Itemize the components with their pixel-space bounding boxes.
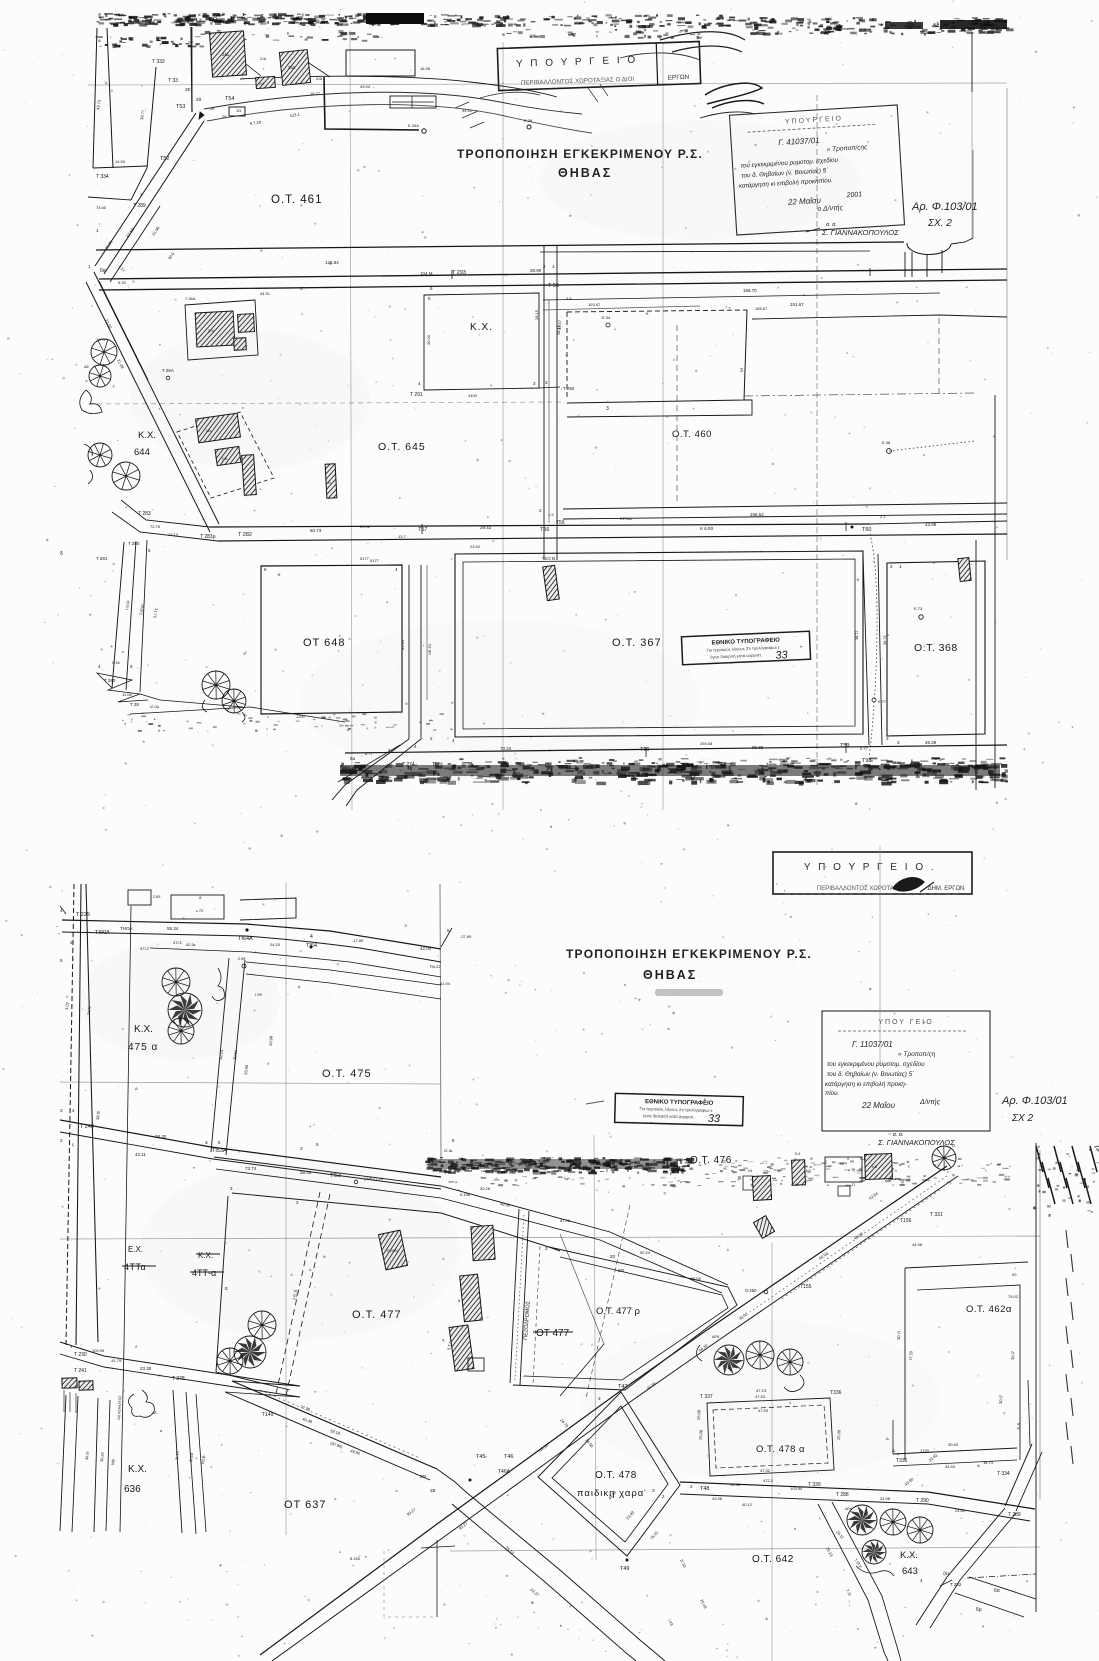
- svg-text:Τ 334: Τ 334: [96, 174, 109, 180]
- svg-text:92.24: 92.24: [640, 1250, 651, 1255]
- svg-text:Τ46Α: Τ46Α: [498, 1469, 511, 1475]
- svg-text:Ο.Τ. 368: Ο.Τ. 368: [914, 642, 958, 654]
- svg-text:Υ Π Ο Υ Ρ Γ Ε Ι Ο .: Υ Π Ο Υ Ρ Γ Ε Ι Ο .: [804, 862, 936, 873]
- svg-text:1720: 1720: [920, 1448, 930, 1453]
- svg-text:38.Ι0: 38.Ι0: [95, 1110, 101, 1120]
- svg-text:43.98: 43.98: [712, 1496, 723, 1501]
- svg-text:3 5: 3 5: [566, 296, 572, 301]
- svg-text:ΔΗΜ. ΕΡΓΩΝ: ΔΗΜ. ΕΡΓΩΝ: [928, 886, 965, 892]
- svg-text:Τ52: Τ52: [160, 156, 169, 162]
- svg-text:ΟΤ 637: ΟΤ 637: [284, 1499, 327, 1511]
- svg-text:Τ 339: Τ 339: [808, 1482, 821, 1488]
- svg-text:Ο.Τ. 642: Ο.Τ. 642: [752, 1554, 794, 1565]
- svg-text:22 Μαΐου: 22 Μαΐου: [861, 1101, 896, 1110]
- svg-text:Τ 288: Τ 288: [836, 1492, 849, 1498]
- svg-text:74.60: 74.60: [96, 205, 107, 210]
- svg-text:Τ60: Τ60: [862, 527, 871, 533]
- svg-text:Τ 240: Τ 240: [80, 1124, 94, 1130]
- svg-text:Ο: Ο: [952, 1143, 955, 1148]
- svg-text:33: 33: [775, 649, 789, 662]
- svg-text:Ο.Τ. 475: Ο.Τ. 475: [322, 1068, 372, 1080]
- svg-text:Τ 281: Τ 281: [96, 556, 108, 561]
- svg-text:Τ 292: Τ 292: [563, 386, 575, 391]
- svg-text:6α: 6α: [100, 268, 106, 274]
- svg-text:43.38: 43.38: [730, 1482, 741, 1487]
- svg-text:Σ/Δ: Σ/Δ: [259, 82, 265, 86]
- svg-text:Τ53: Τ53: [176, 104, 185, 110]
- svg-text:1400: 1400: [468, 393, 478, 398]
- svg-text:1,5: 1,5: [548, 512, 554, 517]
- svg-text:Ε.34: Ε.34: [602, 315, 611, 320]
- svg-text:Ε.39: Ε.39: [524, 118, 533, 123]
- svg-text:16.77: 16.77: [310, 91, 321, 96]
- svg-text:60.73: 60.73: [310, 528, 322, 533]
- svg-text:103.94: 103.94: [790, 1486, 803, 1491]
- svg-text:Κ.Χ.: Κ.Χ.: [900, 1550, 918, 1561]
- svg-text:6ρ: 6ρ: [976, 1607, 982, 1613]
- svg-text:Τ335: Τ335: [896, 1458, 908, 1464]
- svg-text:2.69: 2.69: [153, 895, 160, 899]
- svg-text:Ν8Ι: Ν8Ι: [111, 1459, 116, 1465]
- svg-text:42.11: 42.11: [135, 1152, 146, 1157]
- svg-text:14.73: 14.73: [983, 1460, 994, 1465]
- svg-text:Ε.34Α: Ε.34Α: [408, 123, 419, 128]
- svg-text:30.43: 30.43: [948, 1442, 959, 1447]
- svg-text:Τ56: Τ56: [556, 520, 565, 526]
- svg-text:9.77: 9.77: [860, 746, 869, 751]
- svg-text:Σ. ΓΙΑΝΝΑΚΟΠΟΥΛΟΣ: Σ. ΓΙΑΝΝΑΚΟΠΟΥΛΟΣ: [821, 228, 899, 237]
- svg-text:28.15: 28.15: [534, 309, 539, 320]
- svg-text:Δ: Δ: [135, 1086, 138, 1091]
- svg-text:Ο.Τ. 461: Ο.Τ. 461: [271, 194, 322, 206]
- svg-text:104 Μ.: 104 Μ.: [420, 271, 434, 276]
- svg-text:Τ54: Τ54: [225, 96, 234, 102]
- svg-text:30.28: 30.28: [480, 1186, 491, 1191]
- svg-text:166.52: 166.52: [750, 512, 764, 517]
- svg-text:Ο.Τ. 462α: Ο.Τ. 462α: [966, 1304, 1012, 1315]
- svg-text:Δ/ντής: Δ/ντής: [919, 1099, 941, 1106]
- svg-text:ι/ι: ι/ι: [328, 481, 331, 485]
- svg-text:128.84: 128.84: [325, 260, 339, 265]
- svg-text:5.Δ: 5.Δ: [860, 1156, 866, 1161]
- svg-text:ε.72: ε.72: [196, 908, 204, 913]
- svg-text:2Β: 2Β: [430, 1488, 436, 1493]
- svg-text:23.42: 23.42: [470, 544, 481, 549]
- svg-text:ΤΙ90Α: ΤΙ90Α: [95, 930, 110, 936]
- svg-text:Τ 289: Τ 289: [133, 203, 146, 209]
- svg-text:Τ 280: Τ 280: [104, 678, 116, 683]
- svg-text:Τ48: Τ48: [700, 1486, 709, 1492]
- svg-text:Αρ. Φ.103/01: Αρ. Φ.103/01: [1001, 1095, 1068, 1107]
- svg-text:Τ56: Τ56: [540, 527, 549, 533]
- svg-text:23.30: 23.30: [140, 1366, 152, 1371]
- svg-text:ΕΡΓΩΝ: ΕΡΓΩΝ: [668, 74, 690, 82]
- svg-text:55.34: 55.34: [167, 926, 179, 931]
- svg-text:Τ49: Τ49: [620, 1566, 629, 1572]
- svg-text:Κ 6.93: Κ 6.93: [700, 526, 714, 531]
- svg-text:« Τροποπ/ςη: « Τροποπ/ςη: [898, 1051, 936, 1058]
- svg-text:Τ45: Τ45: [476, 1454, 485, 1460]
- svg-text:30.7Ι: 30.7Ι: [896, 1331, 901, 1340]
- svg-text:Τ 290: Τ 290: [916, 1498, 929, 1504]
- svg-text:24.80: 24.80: [955, 1508, 966, 1513]
- svg-text:13.13: 13.13: [168, 532, 179, 537]
- svg-text:Τ59: Τ59: [840, 743, 849, 749]
- svg-text:Ζ/Δ: Ζ/Δ: [316, 76, 323, 81]
- svg-text:29.42: 29.42: [480, 525, 492, 530]
- svg-text:8.150: 8.150: [350, 1556, 361, 1561]
- svg-text:-17.89: -17.89: [352, 938, 364, 943]
- svg-text:Ο.Τ. 460: Ο.Τ. 460: [672, 429, 712, 440]
- svg-text:ζ5Ι: ζ5Ι: [943, 1571, 949, 1576]
- svg-text:30.25: 30.25: [100, 1452, 105, 1462]
- svg-text:Τ 28: Τ 28: [130, 702, 139, 707]
- svg-text:ΚΡ.ΟΔ: ΚΡ.ΟΔ: [620, 516, 632, 521]
- svg-text:Τ 333: Τ 333: [152, 59, 165, 65]
- svg-text:28.15: 28.15: [556, 324, 561, 335]
- svg-text:3.02: 3.02: [64, 1001, 70, 1010]
- svg-text:6α: 6α: [350, 756, 356, 761]
- svg-text:ΙΖ.ΟΔ: ΙΖ.ΟΔ: [150, 705, 160, 709]
- svg-text:41.94: 41.94: [440, 981, 451, 986]
- svg-text:2 1: 2 1: [880, 514, 886, 519]
- svg-text:Τ 291: Τ 291: [410, 392, 423, 398]
- svg-text:Τ155: Τ155: [800, 1284, 812, 1290]
- svg-text:20.98: 20.98: [268, 1035, 274, 1046]
- svg-text:11.08: 11.08: [122, 692, 132, 697]
- svg-text:Σ/Δ: Σ/Δ: [208, 328, 215, 333]
- svg-text:ΥΠΟΥ ΓΕΙΟ: ΥΠΟΥ ΓΕΙΟ: [878, 1019, 933, 1026]
- svg-text:Ε.38: Ε.38: [882, 440, 891, 445]
- svg-text:ΕΞ Β: ΕΞ Β: [545, 556, 555, 561]
- svg-text:38.71: 38.71: [855, 630, 859, 640]
- svg-text:87.26: 87.26: [560, 1218, 571, 1223]
- svg-text:Γ. 11037/01: Γ. 11037/01: [852, 1040, 893, 1049]
- svg-text:9.16: 9.16: [112, 660, 121, 665]
- svg-text:7Ι.Β: 7Ι.Β: [1016, 1422, 1021, 1430]
- svg-text:72.75: 72.75: [150, 524, 161, 529]
- svg-text:Ο.Τ. 478: Ο.Τ. 478: [595, 1470, 637, 1481]
- svg-text:Ε.73: Ε.73: [914, 606, 923, 611]
- svg-text:24.98: 24.98: [880, 1496, 891, 1501]
- svg-text:26.39: 26.39: [925, 740, 937, 745]
- svg-text:43.98: 43.98: [925, 522, 937, 527]
- svg-text:Αρ. Φ.103/01: Αρ. Φ.103/01: [911, 201, 978, 213]
- svg-text:Τ 280: Τ 280: [128, 541, 140, 546]
- svg-text:30.Ι7: 30.Ι7: [998, 1394, 1003, 1404]
- svg-text:Τ 293: Τ 293: [452, 270, 466, 276]
- svg-text:94.51: 94.51: [462, 108, 473, 113]
- svg-text:ΤΙ64Α: ΤΙ64Α: [238, 936, 253, 942]
- svg-text:28.90: 28.90: [530, 268, 542, 273]
- svg-text:ΣΧ 2: ΣΧ 2: [1011, 1113, 1033, 1124]
- svg-text:Τ 282: Τ 282: [238, 532, 252, 538]
- svg-text:1Ω: 1Ω: [236, 108, 241, 113]
- svg-text:ΙΖ.ΙΔ: ΙΖ.ΙΔ: [444, 1148, 453, 1153]
- svg-text:2Ε: 2Ε: [185, 87, 191, 92]
- svg-text:ΟΤ 477: ΟΤ 477: [536, 1328, 570, 1339]
- svg-text:4: 4: [310, 934, 313, 940]
- svg-text:40.12: 40.12: [742, 1502, 753, 1507]
- svg-text:7.36Δ: 7.36Δ: [185, 296, 196, 301]
- svg-text:Ι/Δ: Ι/Δ: [806, 1168, 811, 1173]
- svg-text:2θ: 2θ: [222, 114, 227, 119]
- svg-text:20: 20: [610, 1254, 616, 1259]
- svg-text:Σ/Δ: Σ/Δ: [222, 52, 229, 57]
- svg-text:Ι/Δ: Ι/Δ: [872, 1164, 877, 1169]
- svg-text:ΡΔ.22: ΡΔ.22: [430, 964, 441, 969]
- svg-text:294.08: 294.08: [700, 756, 713, 761]
- svg-text:ΘΗΒΑΣ: ΘΗΒΑΣ: [643, 968, 697, 982]
- svg-text:3: 3: [606, 406, 609, 412]
- svg-text:ΤΗΟΑ: ΤΗΟΑ: [120, 926, 132, 931]
- svg-text:Τ 278: Τ 278: [172, 1376, 185, 1382]
- svg-text:-27.89: -27.89: [460, 934, 472, 939]
- svg-text:Τ 230: Τ 230: [74, 1352, 87, 1358]
- svg-text:Τ149: Τ149: [262, 1412, 274, 1418]
- svg-text:5.4: 5.4: [795, 1152, 800, 1156]
- svg-text:Τ 241: Τ 241: [74, 1368, 87, 1374]
- svg-text:94.51: 94.51: [260, 291, 271, 296]
- svg-text:643: 643: [902, 1566, 918, 1577]
- svg-text:193.47: 193.47: [588, 302, 601, 307]
- svg-text:6α: 6α: [994, 1588, 1000, 1594]
- svg-text:Ι/4: Ι/4: [748, 1169, 752, 1173]
- svg-text:5177: 5177: [360, 556, 370, 561]
- svg-text:42.00: 42.00: [420, 946, 432, 951]
- svg-text:2Θ: 2Θ: [618, 1268, 625, 1273]
- svg-text:Ο.Τ. 477 ρ: Ο.Τ. 477 ρ: [596, 1306, 641, 1317]
- svg-text:43.94: 43.94: [360, 84, 371, 89]
- svg-text:2θ: 2θ: [196, 97, 202, 102]
- svg-text:Τ57: Τ57: [418, 527, 427, 533]
- svg-text:Τ 283: Τ 283: [138, 511, 151, 517]
- svg-text:294.08: 294.08: [700, 741, 713, 746]
- svg-text:644: 644: [134, 447, 150, 458]
- svg-text:16.98: 16.98: [420, 66, 431, 71]
- svg-text:Τ 33: Τ 33: [168, 78, 178, 84]
- svg-text:ΤΡΟΠΟΠΟΙΗΣΗ ΕΓΚΕΚΡΙΜΕΝΟΥ Ρ.Σ: ΤΡΟΠΟΠΟΙΗΣΗ ΕΓΚΕΚΡΙΜΕΝΟΥ Ρ.Σ.: [566, 947, 812, 961]
- svg-text:Τ156: Τ156: [900, 1218, 912, 1224]
- svg-text:151.67: 151.67: [790, 302, 804, 307]
- svg-text:Τ 334: Τ 334: [997, 1471, 1010, 1477]
- svg-text:636: 636: [124, 1484, 141, 1495]
- svg-text:28.32: 28.32: [155, 1134, 167, 1139]
- svg-text:155.67: 155.67: [755, 306, 768, 311]
- svg-text:ΔΕΝ: ΔΕΝ: [845, 1507, 853, 1511]
- svg-text:Τ 282: Τ 282: [950, 1582, 962, 1587]
- svg-text:5177: 5177: [370, 558, 380, 563]
- svg-text:Σ/Δ: Σ/Δ: [288, 65, 295, 70]
- svg-text:Σ/Δ: Σ/Δ: [260, 56, 267, 61]
- svg-text:26: 26: [210, 106, 215, 111]
- svg-text:Π: Π: [852, 1182, 855, 1187]
- svg-text:30.Ι7: 30.Ι7: [1010, 1350, 1015, 1360]
- svg-text:14.93: 14.93: [115, 159, 126, 164]
- svg-text:33: 33: [708, 1113, 721, 1125]
- svg-text:Ο.Τ. 645: Ο.Τ. 645: [378, 441, 426, 453]
- svg-text:ΔΓ,: ΔΓ,: [152, 1410, 158, 1415]
- svg-text:75.0C: 75.0C: [1008, 1294, 1019, 1299]
- svg-text:ΟΤ 648: ΟΤ 648: [303, 637, 346, 649]
- svg-text:πίου.: πίου.: [825, 1089, 839, 1097]
- svg-text:100.99: 100.99: [92, 1348, 105, 1353]
- svg-text:Ε.77: Ε.77: [878, 700, 886, 704]
- svg-text:3: 3: [740, 368, 743, 374]
- svg-text:Ο.Τ. 476: Ο.Τ. 476: [690, 1155, 732, 1166]
- svg-text:Τ 331: Τ 331: [930, 1212, 943, 1218]
- svg-text:23.92: 23.92: [360, 524, 371, 529]
- svg-text:-41.79: -41.79: [110, 1358, 122, 1363]
- svg-text:30.00: 30.00: [426, 334, 431, 345]
- svg-text:του δ. Θηβαίων (ν. Βοιωτίας) 5: του δ. Θηβαίων (ν. Βοιωτίας) 5΄: [827, 1070, 914, 1078]
- svg-text:24.20: 24.20: [270, 942, 281, 947]
- svg-text:του εγκεκριμένου ρυμοτομ. σχεδ: του εγκεκριμένου ρυμοτομ. σχεδίου: [827, 1060, 925, 1068]
- svg-text:44.98: 44.98: [912, 1242, 923, 1247]
- svg-text:Κ.Χ.: Κ.Χ.: [128, 1464, 147, 1475]
- svg-text:ΣΧ. 2: ΣΧ. 2: [927, 218, 952, 229]
- svg-text:Ο.260: Ο.260: [745, 1288, 757, 1293]
- svg-text:Τ46: Τ46: [504, 1454, 513, 1460]
- svg-text:36.73: 36.73: [883, 635, 887, 645]
- svg-text:ΤΙ53Α: ΤΙ53Α: [212, 1148, 227, 1154]
- svg-text:ΔΕ: ΔΕ: [84, 365, 90, 369]
- svg-text:34.43: 34.43: [945, 1464, 956, 1469]
- svg-text:Τ 225: Τ 225: [76, 912, 90, 918]
- svg-text:δ: δ: [60, 551, 63, 557]
- svg-text:49.Ι5: 49.Ι5: [85, 1451, 90, 1460]
- svg-text:κατάργηση κι επιβολή προκη-: κατάργηση κι επιβολή προκη-: [825, 1080, 907, 1088]
- svg-text:5.33: 5.33: [118, 280, 127, 285]
- svg-text:158.70: 158.70: [743, 288, 757, 293]
- svg-text:74.79: 74.79: [96, 338, 106, 342]
- svg-text:00: 00: [1012, 1272, 1017, 1277]
- svg-text:5.158: 5.158: [460, 1192, 471, 1197]
- svg-text:95.88: 95.88: [752, 745, 764, 750]
- svg-text:13.7: 13.7: [398, 534, 407, 539]
- svg-text:Κ.Χ.: Κ.Χ.: [470, 322, 493, 333]
